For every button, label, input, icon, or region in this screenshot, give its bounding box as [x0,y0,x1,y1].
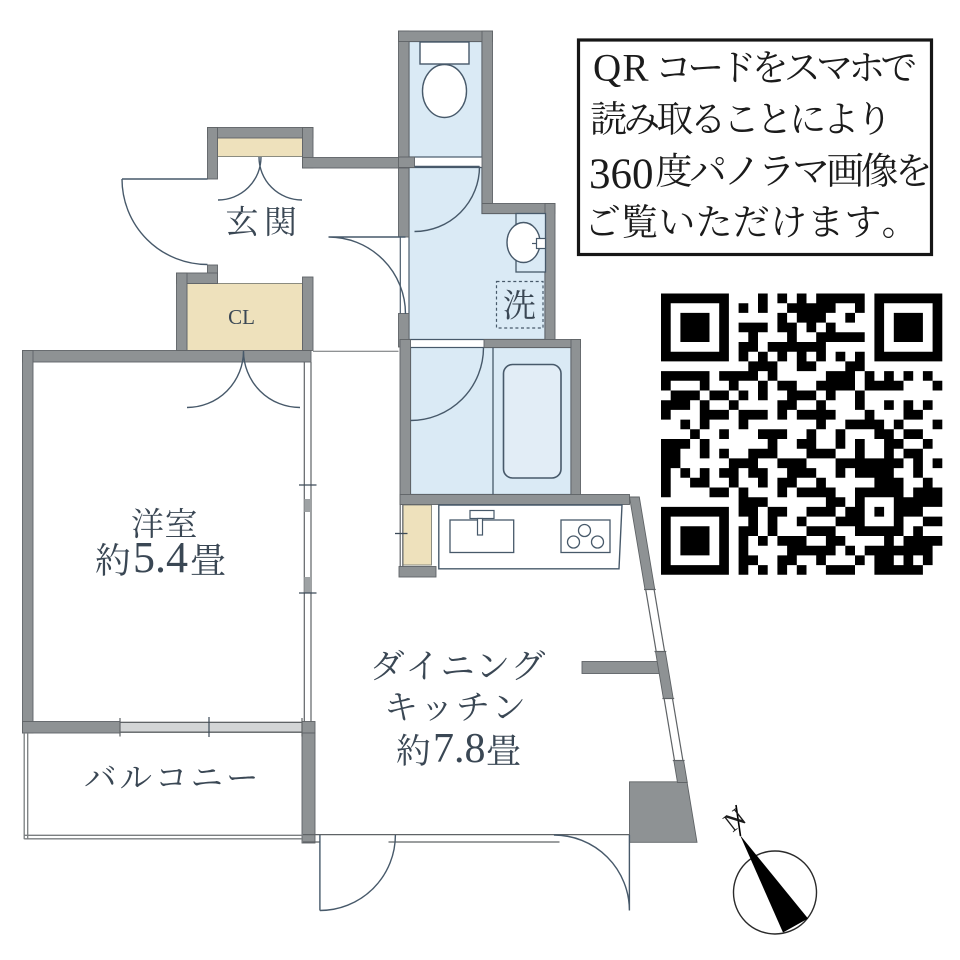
svg-text:360: 360 [589,151,654,198]
svg-text:7.8: 7.8 [433,726,486,772]
svg-text:CL: CL [228,305,255,329]
svg-text:Q: Q [593,47,621,90]
svg-text:R: R [623,47,649,90]
svg-text:5.4: 5.4 [133,533,188,582]
